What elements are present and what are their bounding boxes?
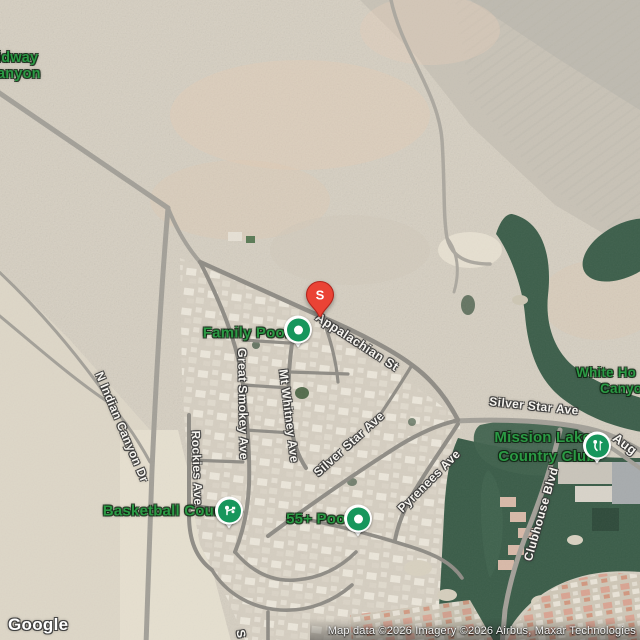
golf-club-marker[interactable] (583, 432, 611, 470)
google-logo[interactable]: Google (8, 615, 68, 635)
marker-ring (344, 505, 372, 533)
marker-ring (284, 316, 312, 344)
basketball-icon (218, 499, 241, 522)
destination-marker[interactable]: S (303, 280, 337, 318)
pool-icon (287, 318, 310, 341)
poi-label-line: anyon (0, 66, 41, 82)
destination-pin-icon: S (303, 280, 337, 318)
pool-icon (347, 507, 370, 530)
golfer-icon (586, 434, 609, 457)
map-canvas[interactable]: Appalachian St Great Smokey Ave Mt Whitn… (0, 0, 640, 640)
poi-label-basketball-court[interactable]: Basketball Court (103, 503, 225, 520)
street-label-great-smokey: Great Smokey Ave (235, 348, 251, 460)
poi-label-white-canyon-line1[interactable]: White Ho (576, 365, 636, 380)
marker-ring (583, 432, 611, 460)
poi-label-55-pool[interactable]: 55+ Pool (286, 511, 350, 528)
poi-label-family-pool[interactable]: Family Pool (203, 325, 289, 342)
basketball-court-marker[interactable] (215, 497, 243, 535)
svg-text:S: S (316, 288, 325, 303)
marker-ring (215, 497, 243, 525)
poi-label-midway-canyon[interactable]: idway anyon (0, 50, 41, 82)
family-pool-marker[interactable] (284, 316, 312, 354)
attribution-text: Map data ©2026 Imagery ©2026 Airbus, Max… (328, 625, 636, 637)
street-label-rockies: Rockies Ave (189, 430, 206, 505)
55-pool-marker[interactable] (344, 505, 372, 543)
poi-label-white-canyon-line2[interactable]: Canyo (600, 381, 640, 396)
poi-label-line: idway (0, 50, 41, 66)
